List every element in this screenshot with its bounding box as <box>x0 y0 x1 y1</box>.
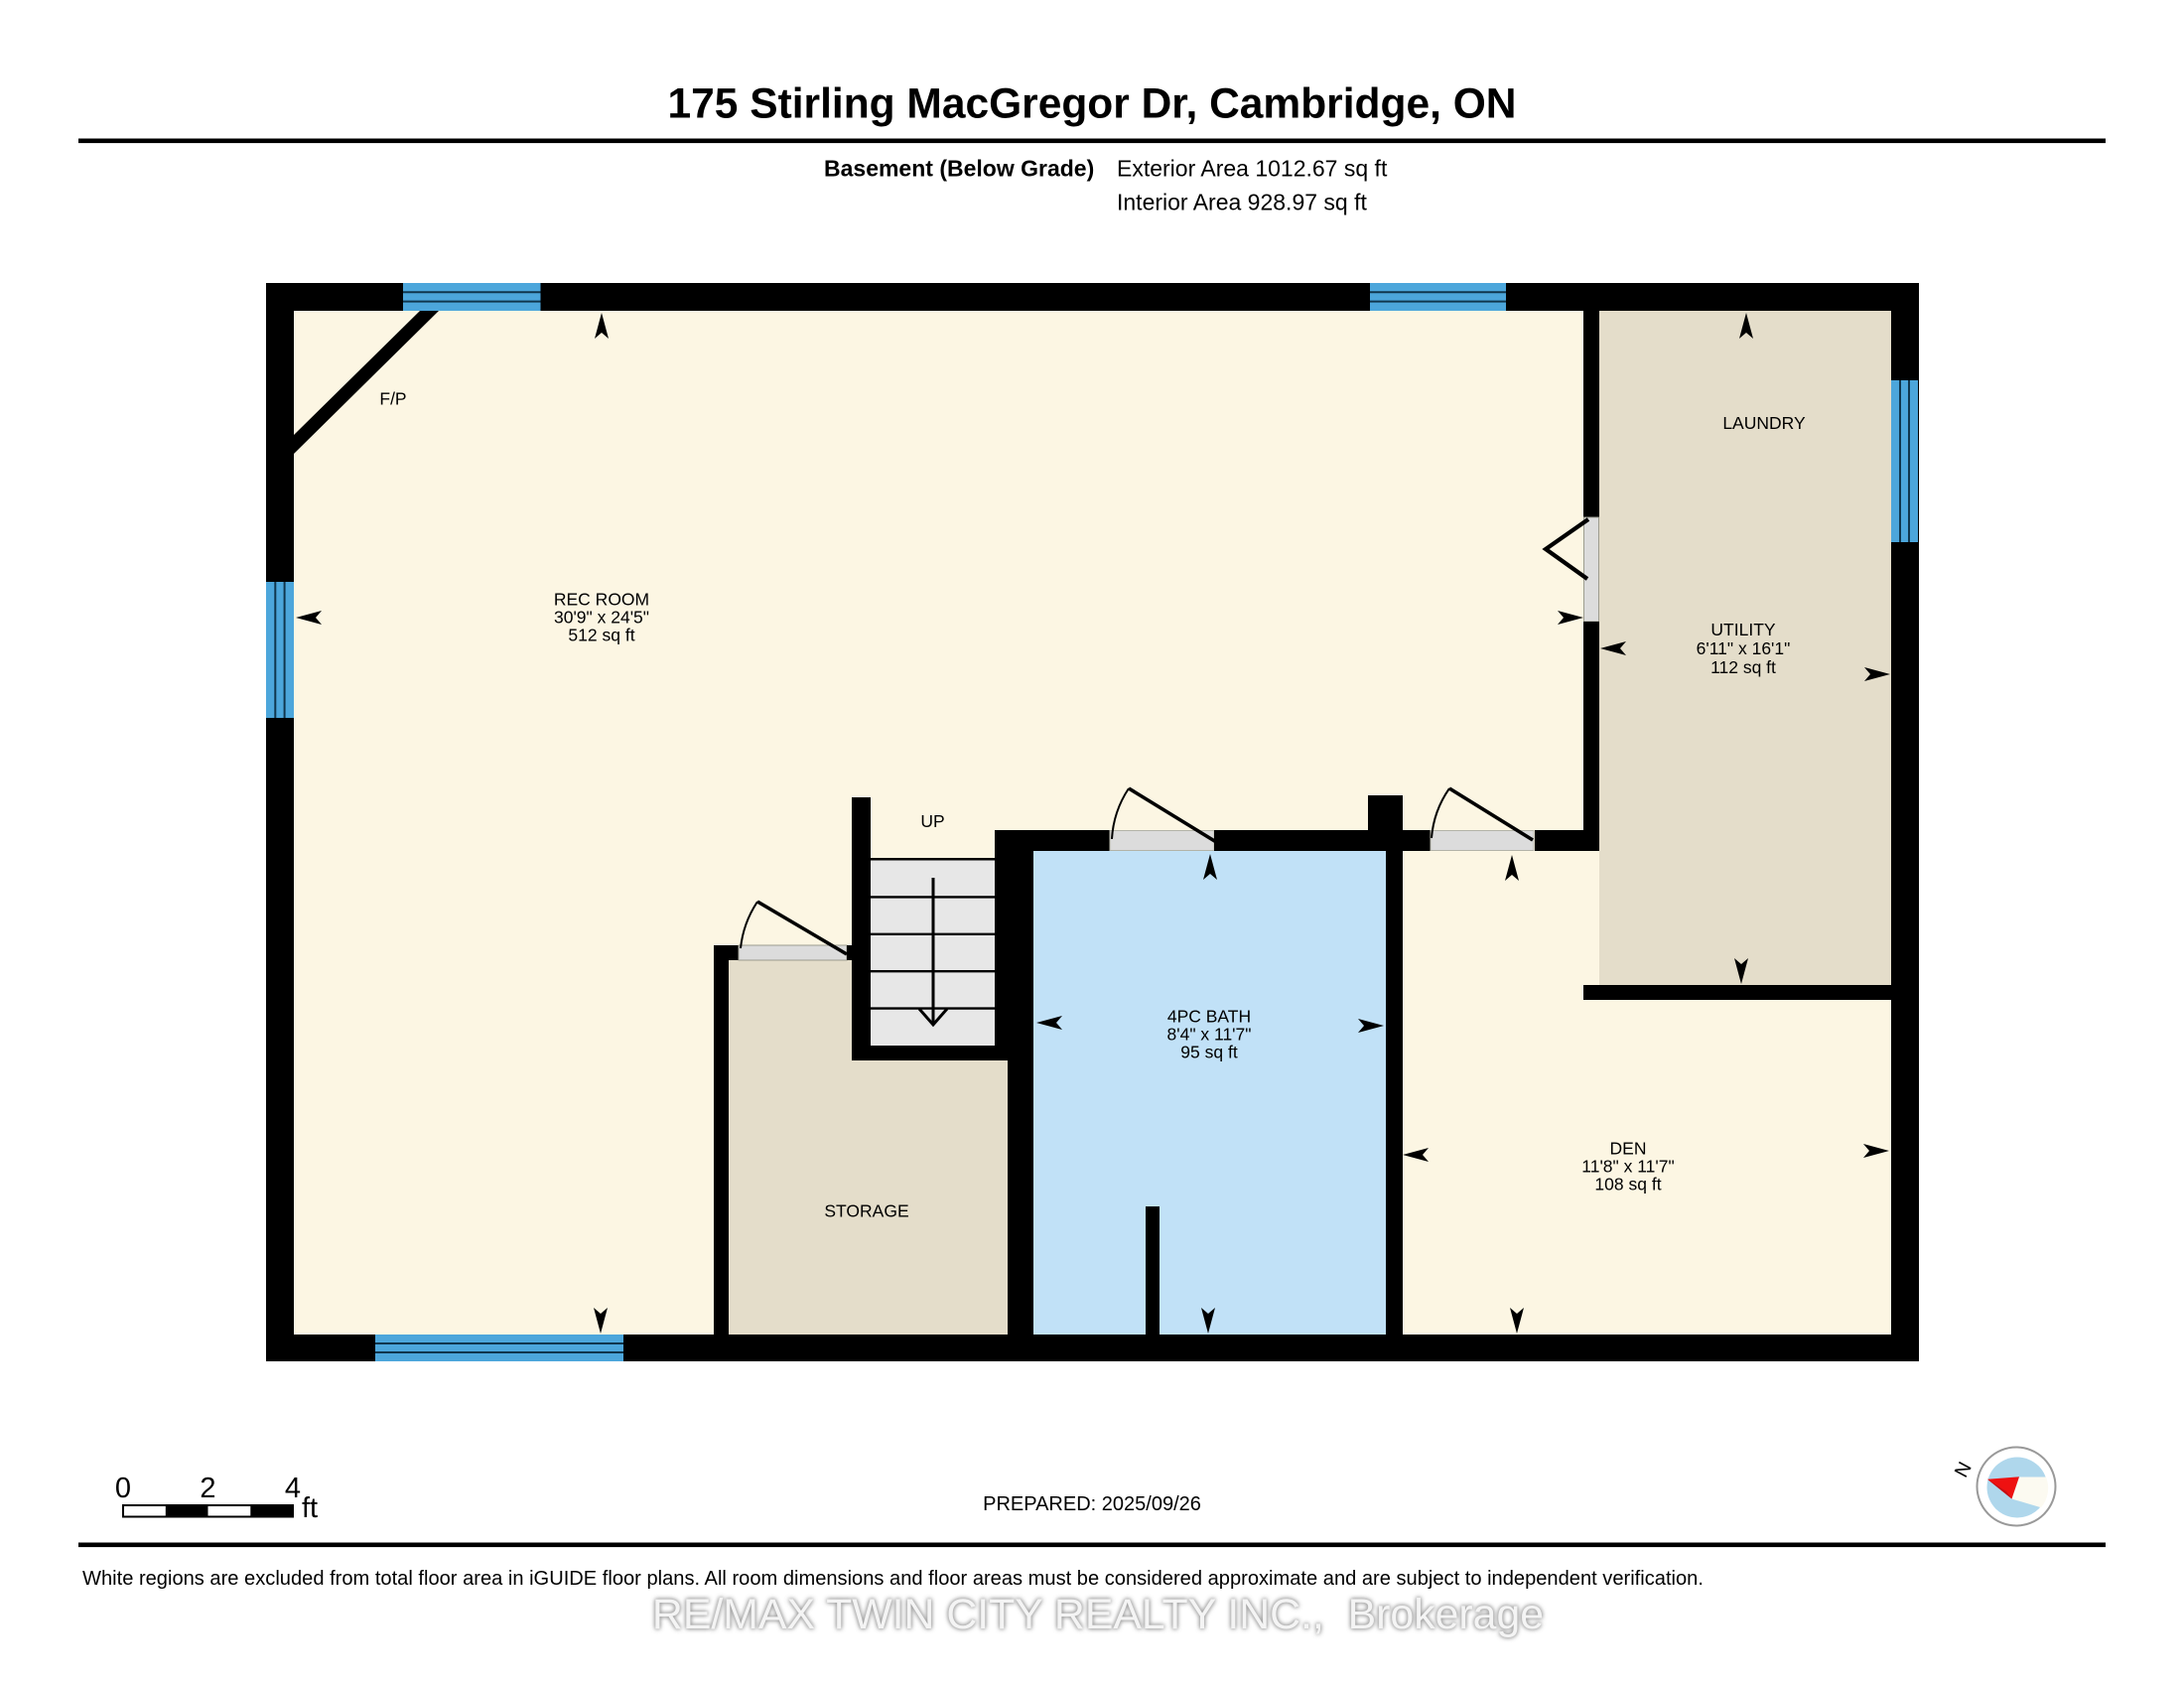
svg-text:N: N <box>1951 1459 1977 1481</box>
svg-text:PREPARED: 2025/09/26: PREPARED: 2025/09/26 <box>983 1493 1201 1515</box>
svg-text:112 sq ft: 112 sq ft <box>1710 657 1776 677</box>
svg-text:6'11" x 16'1": 6'11" x 16'1" <box>1697 638 1791 658</box>
svg-text:Interior Area 928.97 sq ft: Interior Area 928.97 sq ft <box>1117 190 1367 215</box>
svg-text:White regions are excluded fro: White regions are excluded from total fl… <box>82 1568 1704 1590</box>
svg-text:175 Stirling MacGregor Dr, Cam: 175 Stirling MacGregor Dr, Cambridge, ON <box>668 81 1517 128</box>
svg-text:512 sq ft: 512 sq ft <box>568 626 634 645</box>
svg-text:DEN: DEN <box>1610 1139 1647 1159</box>
svg-text:4PC BATH: 4PC BATH <box>1167 1007 1251 1027</box>
svg-text:RE/MAX TWIN CITY REALTY INC.,: RE/MAX TWIN CITY REALTY INC., Brokerage <box>652 1591 1544 1638</box>
svg-text:108 sq ft: 108 sq ft <box>1594 1175 1661 1195</box>
svg-text:LAUNDRY: LAUNDRY <box>1722 413 1806 433</box>
svg-text:UP: UP <box>920 811 944 831</box>
svg-text:8'4" x 11'7": 8'4" x 11'7" <box>1167 1025 1252 1045</box>
svg-text:95 sq ft: 95 sq ft <box>1180 1043 1238 1062</box>
svg-text:STORAGE: STORAGE <box>824 1201 908 1221</box>
svg-text:2: 2 <box>200 1473 215 1504</box>
svg-text:4: 4 <box>285 1473 301 1504</box>
svg-text:0: 0 <box>115 1473 131 1504</box>
svg-text:F/P: F/P <box>379 389 406 409</box>
svg-text:ft: ft <box>302 1492 318 1524</box>
svg-text:UTILITY: UTILITY <box>1710 620 1775 639</box>
svg-text:Exterior Area 1012.67 sq ft: Exterior Area 1012.67 sq ft <box>1117 156 1388 182</box>
svg-text:Basement (Below Grade): Basement (Below Grade) <box>824 156 1094 182</box>
svg-text:11'8" x 11'7": 11'8" x 11'7" <box>1581 1157 1674 1177</box>
svg-text:REC ROOM: REC ROOM <box>554 590 649 610</box>
svg-text:30'9" x 24'5": 30'9" x 24'5" <box>554 608 649 628</box>
